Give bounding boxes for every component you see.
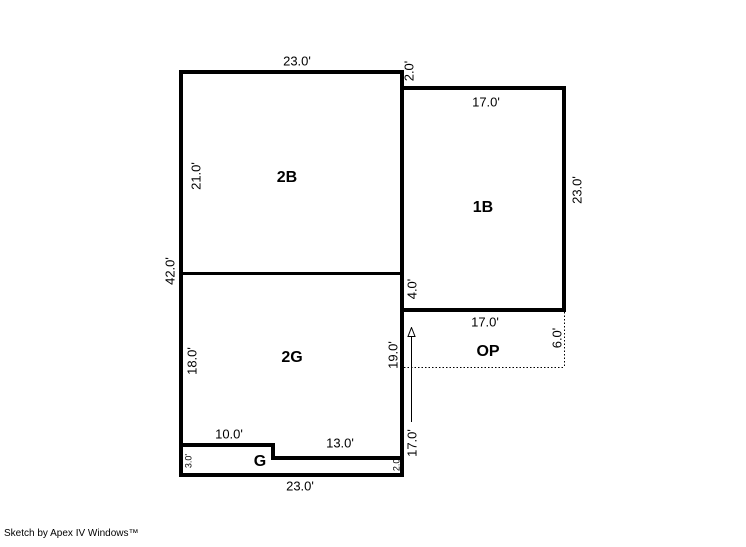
dim-1b-right: 23.0' — [571, 176, 584, 204]
credit-text: Sketch by Apex IV Windows™ — [4, 528, 139, 539]
wall-shared-vertical — [400, 70, 404, 477]
dim-op-top: 17.0' — [471, 316, 499, 329]
dim-op-right: 6.0' — [551, 328, 564, 349]
wall-1b-right — [562, 86, 566, 312]
dim-right-side-arrow: 17.0' — [406, 429, 419, 457]
dim-1b-top: 17.0' — [472, 96, 500, 109]
dimension-arrow-line — [411, 336, 412, 422]
dim-g-right-height: 2.0' — [393, 457, 402, 471]
room-label-op: OP — [476, 344, 499, 360]
room-label-1b: 1B — [473, 200, 493, 216]
dim-1b-top-offset: 2.0' — [403, 61, 416, 82]
op-dashed-bottom — [404, 367, 565, 368]
floor-plan-sketch: 23.0' 21.0' 42.0' 2.0' 17.0' 23.0' 4.0' … — [0, 0, 746, 547]
dim-left-total: 42.0' — [164, 257, 177, 285]
room-label-g: G — [254, 454, 266, 470]
room-label-2b: 2B — [277, 170, 297, 186]
dim-g-left-height: 3.0' — [185, 454, 194, 468]
room-label-2g: 2G — [281, 350, 302, 366]
dim-g-upper: 10.0' — [215, 428, 243, 441]
wall-divide-2b-2g — [183, 272, 400, 275]
dim-2b-left: 21.0' — [190, 162, 203, 190]
wall-outer-top — [179, 70, 404, 74]
wall-outer-bottom — [179, 473, 404, 477]
dim-2g-left: 18.0' — [186, 347, 199, 375]
wall-1b-bottom — [404, 308, 566, 312]
dim-2g-right: 19.0' — [387, 341, 400, 369]
dim-1b-left-lower: 4.0' — [406, 279, 419, 300]
dim-2b-top: 23.0' — [283, 55, 311, 68]
wall-g-upper-step — [179, 443, 275, 447]
wall-1b-top — [404, 86, 566, 90]
dim-g-lower: 13.0' — [326, 437, 354, 450]
wall-g-lower-step — [271, 456, 404, 460]
dim-bottom: 23.0' — [286, 480, 314, 493]
